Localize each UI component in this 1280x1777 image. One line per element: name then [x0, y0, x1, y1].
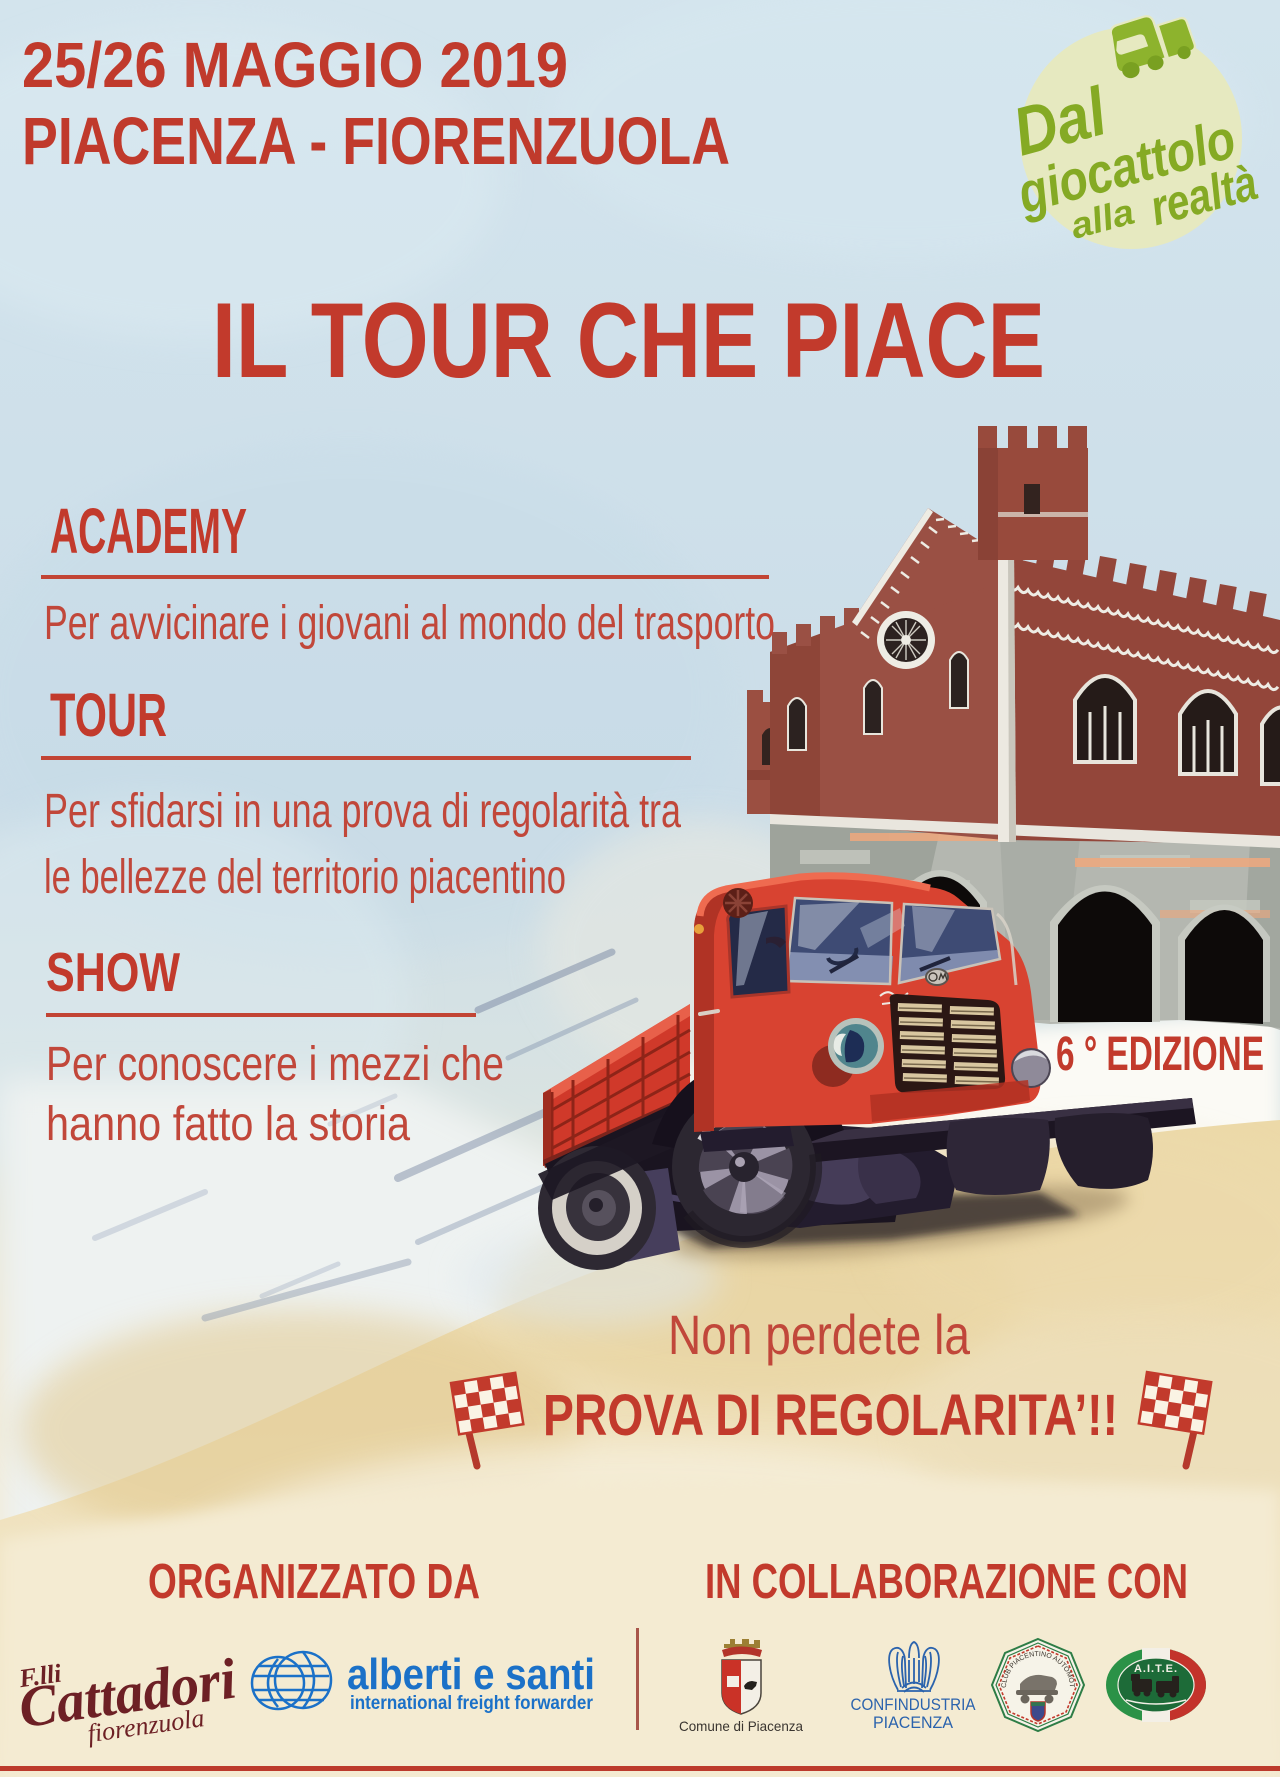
svg-text:CONFINDUSTRIA: CONFINDUSTRIA — [851, 1695, 977, 1714]
svg-text:Non perdete la: Non perdete la — [668, 1303, 971, 1366]
svg-text:Per sfidarsi in una prova di r: Per sfidarsi in una prova di regolarità … — [44, 785, 681, 838]
svg-text:Comune di Piacenza: Comune di Piacenza — [679, 1718, 803, 1734]
svg-text:PIACENZA - FIORENZUOLA: PIACENZA - FIORENZUOLA — [22, 104, 730, 179]
svg-text:6 ° EDIZIONE: 6 ° EDIZIONE — [1056, 1028, 1264, 1081]
svg-text:hanno fatto la storia: hanno fatto la storia — [46, 1098, 410, 1151]
svg-text:ORGANIZZATO DA: ORGANIZZATO DA — [148, 1555, 480, 1609]
svg-text:PIACENZA: PIACENZA — [873, 1713, 954, 1732]
svg-text:Per conoscere i mezzi che: Per conoscere i mezzi che — [46, 1038, 504, 1091]
svg-text:international freight forwarde: international freight forwarder — [350, 1693, 594, 1714]
svg-text:A.I.T.E.: A.I.T.E. — [1134, 1663, 1178, 1675]
svg-text:le bellezze del territorio pia: le bellezze del territorio piacentino — [44, 851, 566, 904]
svg-text:IN COLLABORAZIONE CON: IN COLLABORAZIONE CON — [705, 1555, 1188, 1609]
svg-text:25/26 MAGGIO 2019: 25/26 MAGGIO 2019 — [22, 29, 568, 101]
svg-text:TOUR: TOUR — [50, 681, 167, 749]
svg-text:alberti e santi: alberti e santi — [347, 1650, 595, 1699]
svg-text:PROVA DI REGOLARITA’!!: PROVA DI REGOLARITA’!! — [543, 1383, 1118, 1448]
svg-text:IL TOUR CHE PIACE: IL TOUR CHE PIACE — [212, 280, 1045, 400]
svg-text:Per avvicinare i giovani al mo: Per avvicinare i giovani al mondo del tr… — [44, 597, 775, 650]
svg-text:SHOW: SHOW — [46, 941, 180, 1003]
svg-text:ACADEMY: ACADEMY — [50, 495, 247, 567]
